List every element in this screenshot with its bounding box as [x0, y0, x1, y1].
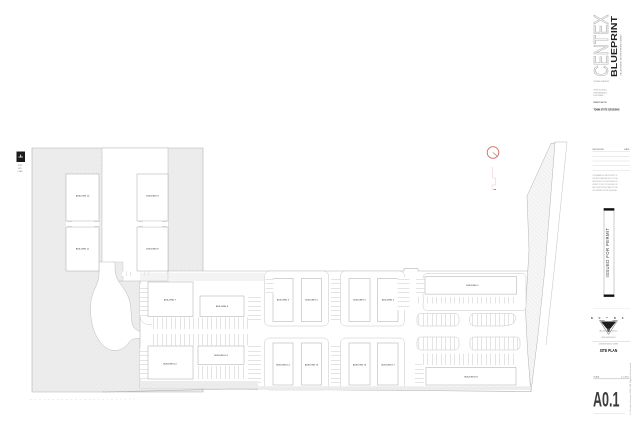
svg-text:ISSUED FOR PERMIT: ISSUED FOR PERMIT	[605, 228, 610, 278]
svg-text:PLAN: PLAN	[18, 170, 23, 173]
svg-text:BUILDING 3: BUILDING 3	[353, 300, 366, 302]
svg-text:BUILDING 11: BUILDING 11	[76, 249, 90, 251]
svg-text:RETURNED UPON REQUEST.: RETURNED UPON REQUEST.	[593, 190, 618, 192]
svg-text:BUILDING 18: BUILDING 18	[464, 377, 478, 379]
svg-text:© Centex Homes 2004 All Rights: © Centex Homes 2004 All Rights Reserved	[629, 363, 632, 415]
svg-text:A CENTEX DESIGN BUILD COMPANY: A CENTEX DESIGN BUILD COMPANY	[599, 343, 618, 346]
svg-text:REPRODUCED OR COPIED IN WHOLE: REPRODUCED OR COPIED IN WHOLE OR	[593, 181, 618, 183]
svg-text:BUILDING 12: BUILDING 12	[163, 364, 177, 366]
svg-text:SCALE:: SCALE:	[594, 375, 600, 378]
svg-text:SITE: SITE	[18, 165, 23, 167]
svg-text:BUILDING 4: BUILDING 4	[305, 300, 318, 302]
svg-text:BUILDING 15: BUILDING 15	[305, 364, 319, 366]
svg-text:TOWN STATE CROSSING: TOWN STATE CROSSING	[594, 107, 620, 111]
svg-text:BUILDING 9: BUILDING 9	[146, 196, 159, 198]
svg-text:2728 N. HARWOOD · DALLAS TEXAS: 2728 N. HARWOOD · DALLAS TEXAS 75201	[594, 80, 610, 83]
svg-text:BUILDING 14: BUILDING 14	[276, 364, 290, 366]
svg-text:BUILDING 17: BUILDING 17	[381, 364, 395, 366]
svg-text:REVISIONS: REVISIONS	[593, 149, 605, 151]
svg-text:PROJECT: 04-217.00: PROJECT: 04-217.00	[594, 101, 607, 104]
svg-text:BUILDING 10: BUILDING 10	[76, 196, 90, 198]
svg-text:BUILDING 1: BUILDING 1	[466, 285, 479, 287]
svg-text:BUILDING 2: BUILDING 2	[382, 300, 395, 302]
svg-text:1" = 40'-0": 1" = 40'-0"	[621, 376, 629, 378]
svg-text:BUILDING 5: BUILDING 5	[277, 300, 290, 302]
svg-text:NATIONAL COMMERCIAL BUILDERS: NATIONAL COMMERCIAL BUILDERS	[602, 336, 616, 339]
svg-text:CENTEX HOMES AND IS NOT TO BE: CENTEX HOMES AND IS NOT TO BE	[593, 177, 618, 180]
svg-text:BLUEPRINT: BLUEPRINT	[609, 15, 619, 77]
svg-text:DALLAS DIVISION · ARCHITECTURE: DALLAS DIVISION · ARCHITECTURE AND PLANN…	[620, 34, 623, 75]
svg-text:THIS DRAWING IS THE PROPERTY O: THIS DRAWING IS THE PROPERTY OF	[593, 174, 619, 177]
svg-text:BUILDING 8: BUILDING 8	[146, 249, 159, 251]
svg-text:BUILDING 13: BUILDING 13	[214, 355, 228, 357]
svg-text:PHONE: 214 981 6544: PHONE: 214 981 6544	[594, 90, 608, 92]
svg-text:A0.1: A0.1	[593, 387, 620, 411]
svg-text:ALL RIGHTS RESERVED: ALL RIGHTS RESERVED	[594, 94, 604, 97]
svg-text:CENTEX HOMES DALLAS LLC: CENTEX HOMES DALLAS LLC	[594, 91, 608, 94]
svg-text:BUILDING 16: BUILDING 16	[353, 364, 367, 366]
svg-text:DATE: DATE	[624, 148, 630, 151]
svg-text:Award of Excellence: Award of Excellence	[598, 329, 618, 332]
svg-text:ANY OTHER PROJECT AND IS TO BE: ANY OTHER PROJECT AND IS TO BE	[593, 186, 618, 189]
svg-text:IN PART. IT IS NOT TO BE USED: IN PART. IT IS NOT TO BE USED ON	[593, 183, 618, 186]
svg-text:BUILDING 6: BUILDING 6	[216, 306, 229, 308]
svg-text:BUILDING 7: BUILDING 7	[164, 300, 177, 302]
svg-text:KEY: KEY	[18, 168, 22, 170]
svg-text:SITE PLAN: SITE PLAN	[600, 348, 618, 353]
